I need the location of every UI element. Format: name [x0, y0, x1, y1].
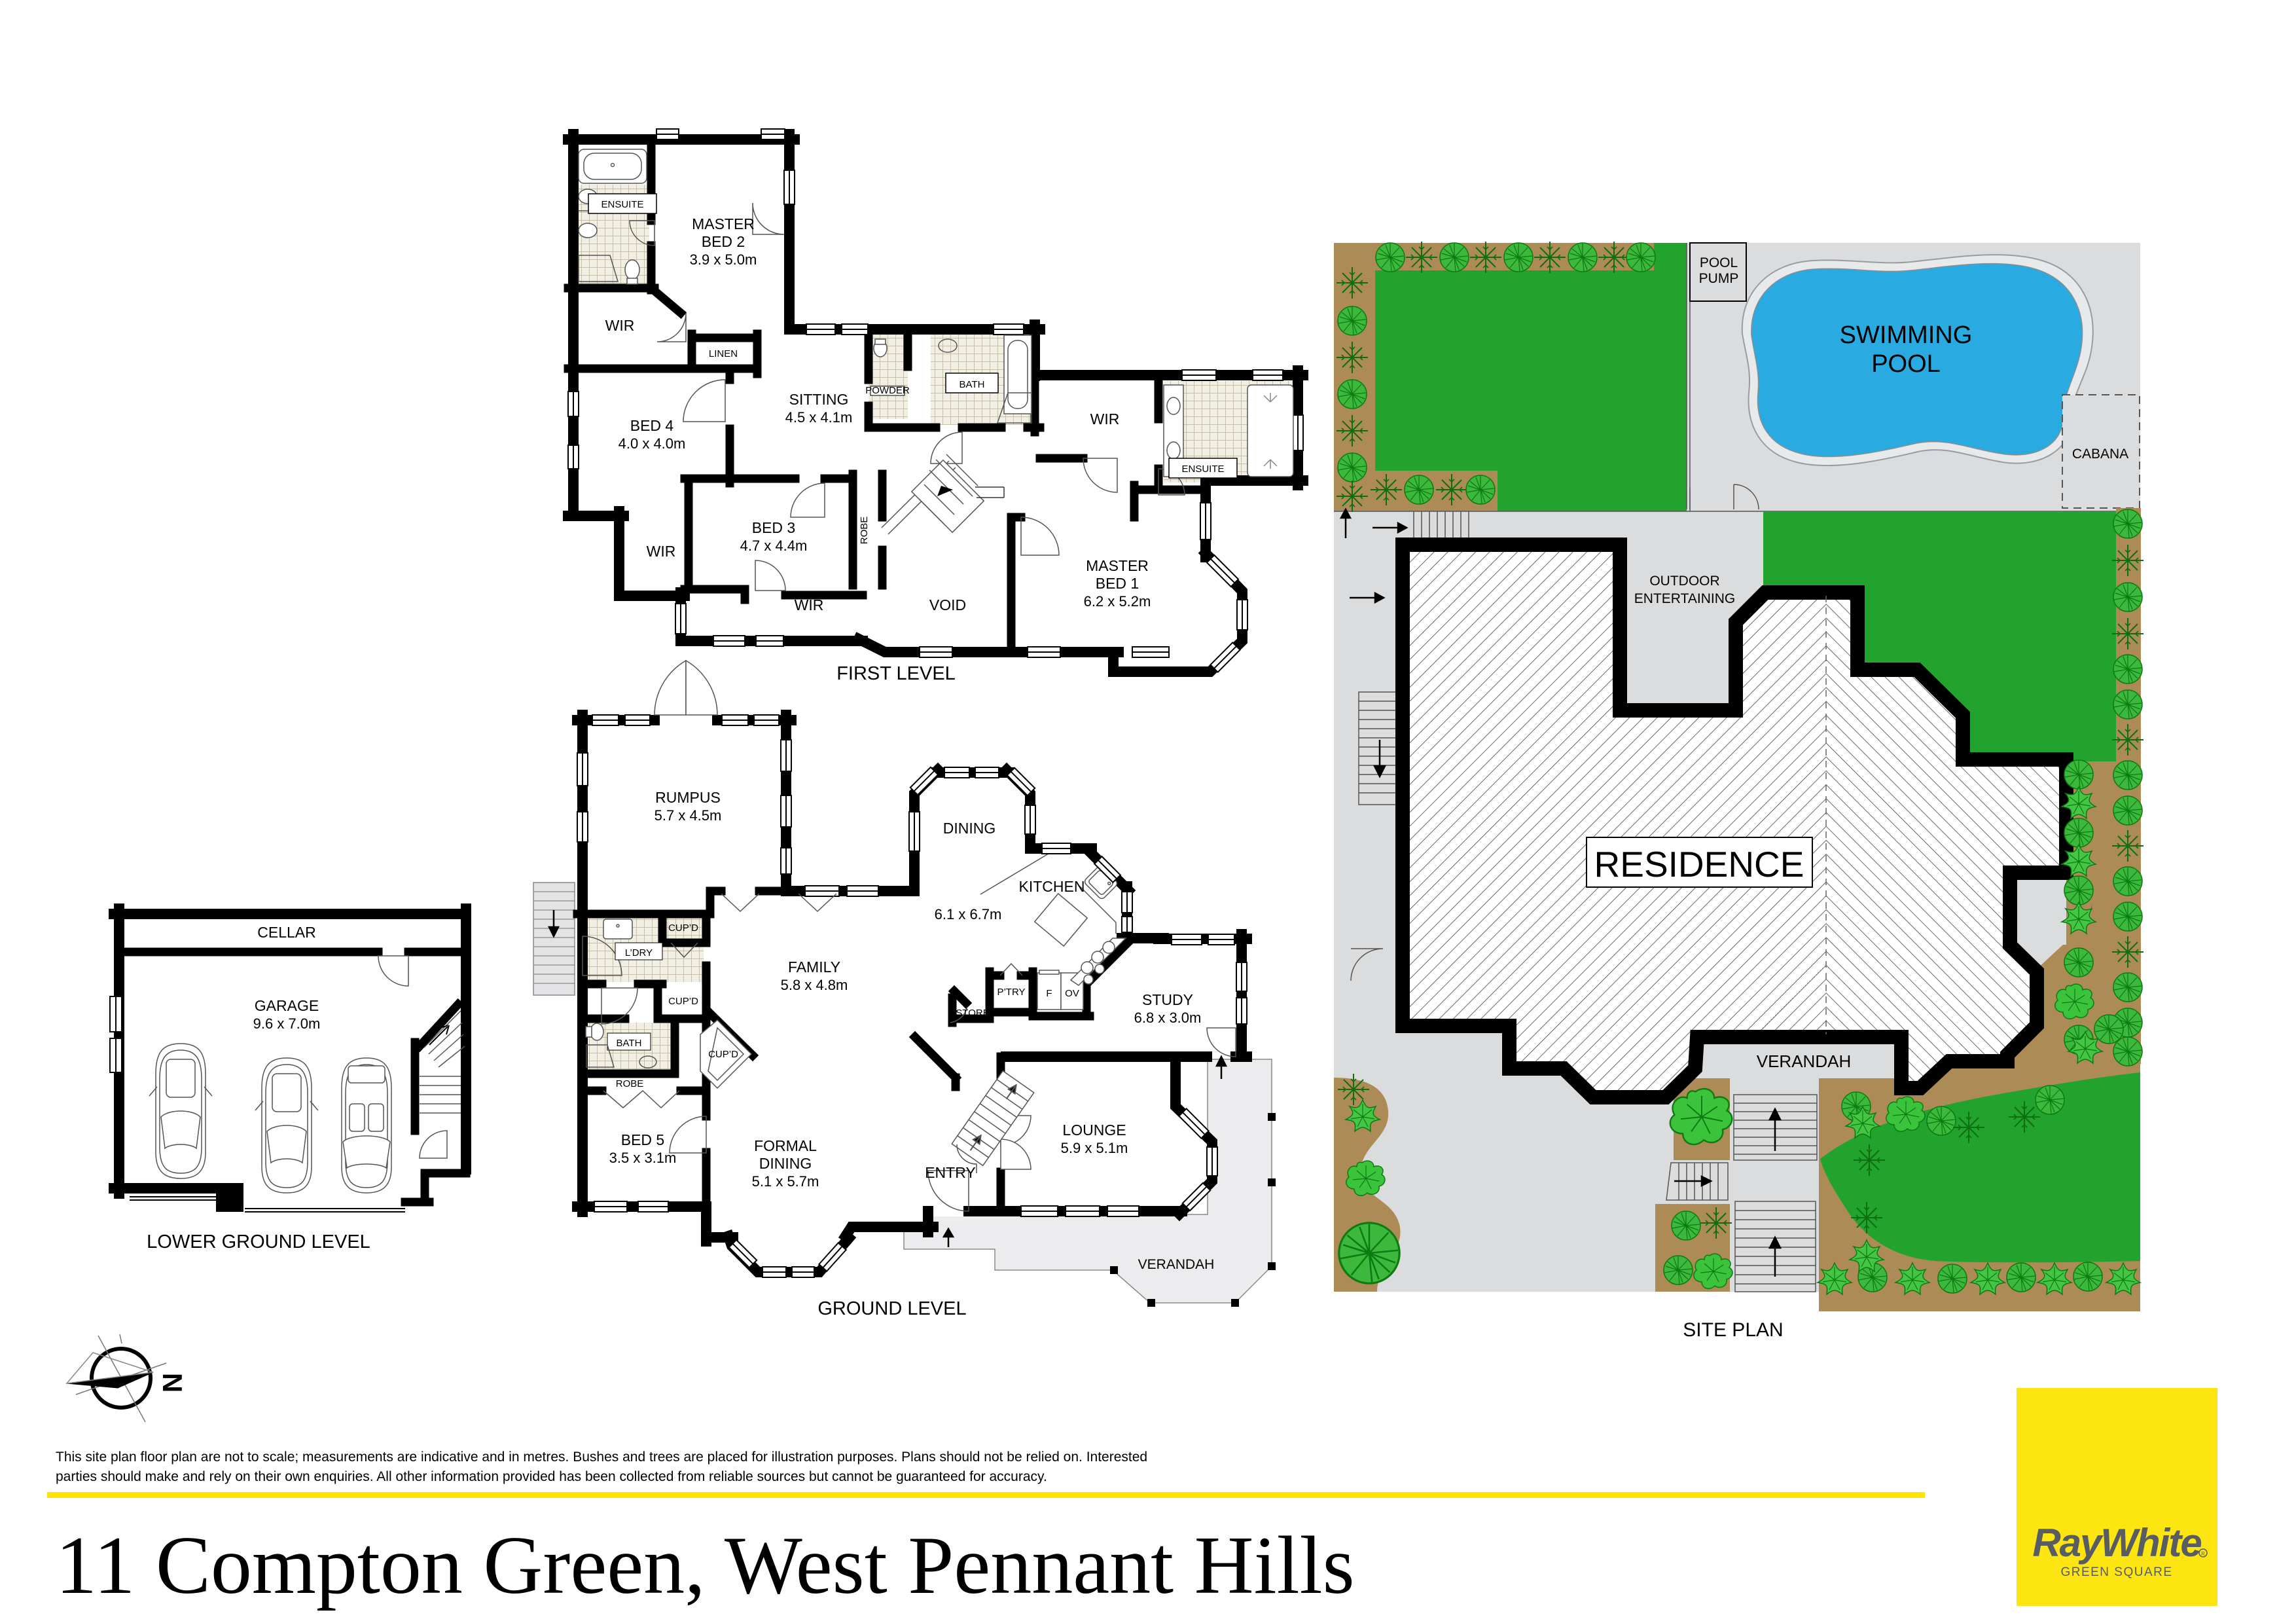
svg-text:FAMILY: FAMILY: [788, 958, 840, 976]
svg-text:POOL: POOL: [1871, 350, 1941, 378]
svg-text:CUP’D: CUP’D: [668, 922, 698, 934]
svg-text:3.5 x 3.1m: 3.5 x 3.1m: [609, 1150, 677, 1166]
svg-text:R: R: [2201, 1551, 2205, 1557]
svg-text:CUP’D: CUP’D: [668, 996, 698, 1007]
svg-text:N: N: [157, 1373, 188, 1393]
svg-text:BATH: BATH: [960, 379, 985, 390]
svg-text:L’DRY: L’DRY: [625, 947, 653, 958]
svg-text:BED 5: BED 5: [621, 1131, 664, 1148]
svg-text:DINING: DINING: [943, 820, 996, 837]
svg-text:11 Compton Green, West Pennant: 11 Compton Green, West Pennant Hills: [56, 1520, 1355, 1611]
svg-text:PUMP: PUMP: [1699, 271, 1739, 286]
svg-text:SWIMMING: SWIMMING: [1840, 321, 1973, 349]
svg-text:OUTDOOR: OUTDOOR: [1649, 574, 1719, 589]
svg-text:ENTRY: ENTRY: [925, 1164, 976, 1181]
svg-text:5.8 x 4.8m: 5.8 x 4.8m: [781, 977, 848, 993]
svg-text:This site plan floor plan are: This site plan floor plan are not to sca…: [56, 1450, 1147, 1465]
svg-text:STORE: STORE: [956, 1008, 989, 1019]
svg-text:SITE PLAN: SITE PLAN: [1683, 1319, 1783, 1341]
svg-text:CELLAR: CELLAR: [257, 924, 315, 941]
svg-text:VERANDAH: VERANDAH: [1757, 1051, 1851, 1071]
svg-text:RESIDENCE: RESIDENCE: [1594, 844, 1804, 884]
svg-text:STUDY: STUDY: [1142, 991, 1193, 1008]
svg-text:RayWhite: RayWhite: [2032, 1521, 2201, 1565]
svg-text:OV: OV: [1065, 988, 1079, 999]
svg-text:POOL: POOL: [1700, 255, 1738, 270]
svg-text:ROBE: ROBE: [616, 1078, 644, 1089]
svg-text:5.1 x 5.7m: 5.1 x 5.7m: [752, 1173, 819, 1190]
svg-text:FIRST LEVEL: FIRST LEVEL: [836, 663, 956, 684]
svg-text:GARAGE: GARAGE: [255, 997, 319, 1014]
svg-text:KITCHEN: KITCHEN: [1019, 878, 1085, 895]
svg-text:parties should make and rely o: parties should make and rely on their ow…: [56, 1469, 1047, 1484]
svg-text:ENSUITE: ENSUITE: [601, 199, 643, 210]
svg-text:ROBE: ROBE: [859, 517, 870, 545]
svg-text:5.9 x 5.1m: 5.9 x 5.1m: [1061, 1140, 1128, 1156]
svg-text:ENSUITE: ENSUITE: [1181, 464, 1224, 475]
svg-text:GREEN SQUARE: GREEN SQUARE: [2060, 1565, 2172, 1579]
svg-text:BATH: BATH: [617, 1038, 642, 1049]
svg-text:P’TRY: P’TRY: [997, 987, 1025, 998]
svg-text:CUP’D: CUP’D: [708, 1049, 738, 1060]
svg-text:3.9 x 5.0m: 3.9 x 5.0m: [690, 251, 757, 268]
svg-text:WIR: WIR: [647, 543, 676, 560]
svg-text:DINING: DINING: [759, 1155, 812, 1172]
svg-text:5.7 x 4.5m: 5.7 x 4.5m: [655, 807, 722, 824]
svg-text:MASTER: MASTER: [1086, 557, 1149, 574]
svg-text:CABANA: CABANA: [2072, 447, 2128, 462]
svg-text:VERANDAH: VERANDAH: [1138, 1257, 1215, 1272]
svg-text:6.2 x 5.2m: 6.2 x 5.2m: [1084, 593, 1151, 610]
svg-text:4.5 x 4.1m: 4.5 x 4.1m: [785, 409, 853, 426]
svg-text:FORMAL: FORMAL: [754, 1137, 817, 1154]
svg-text:9.6 x 7.0m: 9.6 x 7.0m: [253, 1015, 321, 1032]
svg-text:BED 1: BED 1: [1096, 575, 1139, 592]
svg-text:BED 2: BED 2: [702, 233, 745, 250]
svg-text:POWDER: POWDER: [865, 385, 910, 396]
svg-text:4.0 x 4.0m: 4.0 x 4.0m: [619, 435, 686, 452]
svg-text:SITTING: SITTING: [789, 391, 849, 408]
svg-text:BED 4: BED 4: [630, 417, 674, 434]
svg-text:MASTER: MASTER: [692, 215, 755, 232]
svg-text:F: F: [1046, 988, 1052, 999]
svg-text:RUMPUS: RUMPUS: [655, 789, 721, 806]
svg-text:VOID: VOID: [929, 596, 966, 613]
svg-text:WIR: WIR: [1090, 410, 1120, 428]
svg-text:6.8 x 3.0m: 6.8 x 3.0m: [1134, 1010, 1202, 1026]
svg-text:6.1 x 6.7m: 6.1 x 6.7m: [935, 906, 1002, 922]
svg-text:WIR: WIR: [605, 317, 635, 334]
svg-text:4.7 x 4.4m: 4.7 x 4.4m: [740, 538, 808, 554]
svg-text:WIR: WIR: [795, 596, 824, 613]
svg-text:GROUND LEVEL: GROUND LEVEL: [817, 1298, 966, 1319]
svg-text:ENTERTAINING: ENTERTAINING: [1634, 591, 1735, 606]
svg-text:BED 3: BED 3: [752, 519, 795, 536]
svg-text:LOWER GROUND LEVEL: LOWER GROUND LEVEL: [147, 1231, 370, 1252]
svg-text:LINEN: LINEN: [709, 348, 738, 359]
svg-text:LOUNGE: LOUNGE: [1062, 1122, 1126, 1139]
